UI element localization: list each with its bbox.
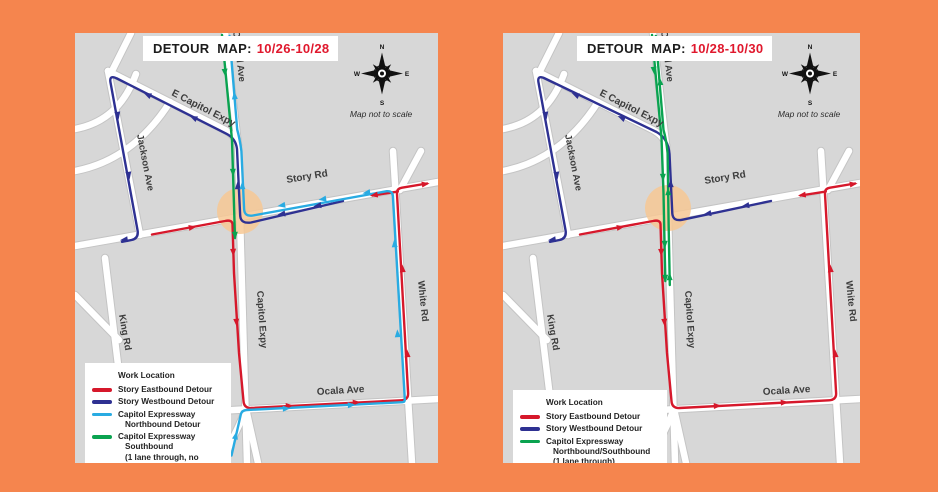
- svg-text:W: W: [782, 71, 789, 78]
- label-jackson-ave: Jackson Ave: [134, 133, 156, 191]
- legend-panel-2: Work Location Story Eastbound Detour Sto…: [513, 390, 667, 463]
- story-eastbound-swatch: [520, 415, 540, 419]
- label-white-rd: White Rd: [415, 280, 430, 322]
- map-title-prefix: DETOUR MAP:: [153, 41, 252, 56]
- legend-item-capitol-southbound: Capitol Expressway Southbound (1 lane th…: [92, 432, 224, 463]
- legend-panel-1: Work Location Story Eastbound Detour Sto…: [85, 363, 231, 463]
- legend-item-story-westbound: Story Westbound Detour: [520, 424, 660, 434]
- story-eastbound-swatch: [92, 388, 112, 392]
- map-title-dates: 10/26-10/28: [257, 41, 330, 56]
- svg-text:N: N: [380, 44, 385, 51]
- legend-item-story-eastbound: Story Eastbound Detour: [92, 385, 224, 395]
- story-eastbound-detour-route: [580, 184, 855, 409]
- label-capitol-expy: Capitol Expy: [254, 290, 269, 349]
- svg-text:E: E: [833, 71, 838, 78]
- map-title: DETOUR MAP:10/28-10/30: [577, 36, 772, 61]
- map-title-prefix: DETOUR MAP:: [587, 41, 686, 56]
- capitol-north-south-swatch: [520, 440, 540, 444]
- label-capitol-expy: Capitol Expy: [682, 290, 697, 349]
- label-white-rd: White Rd: [843, 280, 858, 322]
- svg-text:S: S: [380, 100, 385, 107]
- svg-text:W: W: [354, 71, 361, 78]
- svg-text:E: E: [405, 71, 410, 78]
- detour-map-panel-1: E Capitol Expy Capitol Ave Jackson Ave S…: [75, 33, 438, 463]
- map-scale-note: Map not to scale: [753, 109, 860, 119]
- label-jackson-ave: Jackson Ave: [562, 133, 584, 191]
- label-ocala-ave: Ocala Ave: [317, 384, 366, 398]
- story-westbound-swatch: [92, 400, 112, 404]
- label-ocala-ave: Ocala Ave: [763, 384, 812, 398]
- label-story-rd: Story Rd: [286, 168, 329, 186]
- map-scale-note: Map not to scale: [325, 109, 437, 119]
- svg-text:N: N: [808, 44, 813, 51]
- compass-icon: N W E S: [353, 41, 411, 107]
- compass-icon: N W E S: [781, 41, 839, 107]
- detour-map-panel-2: E Capitol Expy Capitol Ave Jackson Ave S…: [503, 33, 860, 463]
- detour-maps-poster: { "page": { "background": "#F5854E" }, "…: [0, 0, 938, 492]
- capitol-northbound-swatch: [92, 413, 112, 417]
- capitol-southbound-swatch: [92, 435, 112, 439]
- map-title: DETOUR MAP:10/26-10/28: [143, 36, 338, 61]
- svg-text:S: S: [808, 100, 813, 107]
- legend-item-capitol-northbound: Capitol Expressway Northbound Detour: [92, 410, 224, 431]
- map-title-dates: 10/28-10/30: [691, 41, 764, 56]
- legend-item-capitol-north-south: Capitol Expressway Northbound/Southbound…: [520, 437, 660, 463]
- story-westbound-swatch: [520, 427, 540, 431]
- legend-item-story-westbound: Story Westbound Detour: [92, 397, 224, 407]
- legend-item-work-location: Work Location: [92, 371, 224, 383]
- label-story-rd: Story Rd: [704, 169, 747, 187]
- legend-item-work-location: Work Location: [520, 398, 660, 410]
- legend-item-story-eastbound: Story Eastbound Detour: [520, 412, 660, 422]
